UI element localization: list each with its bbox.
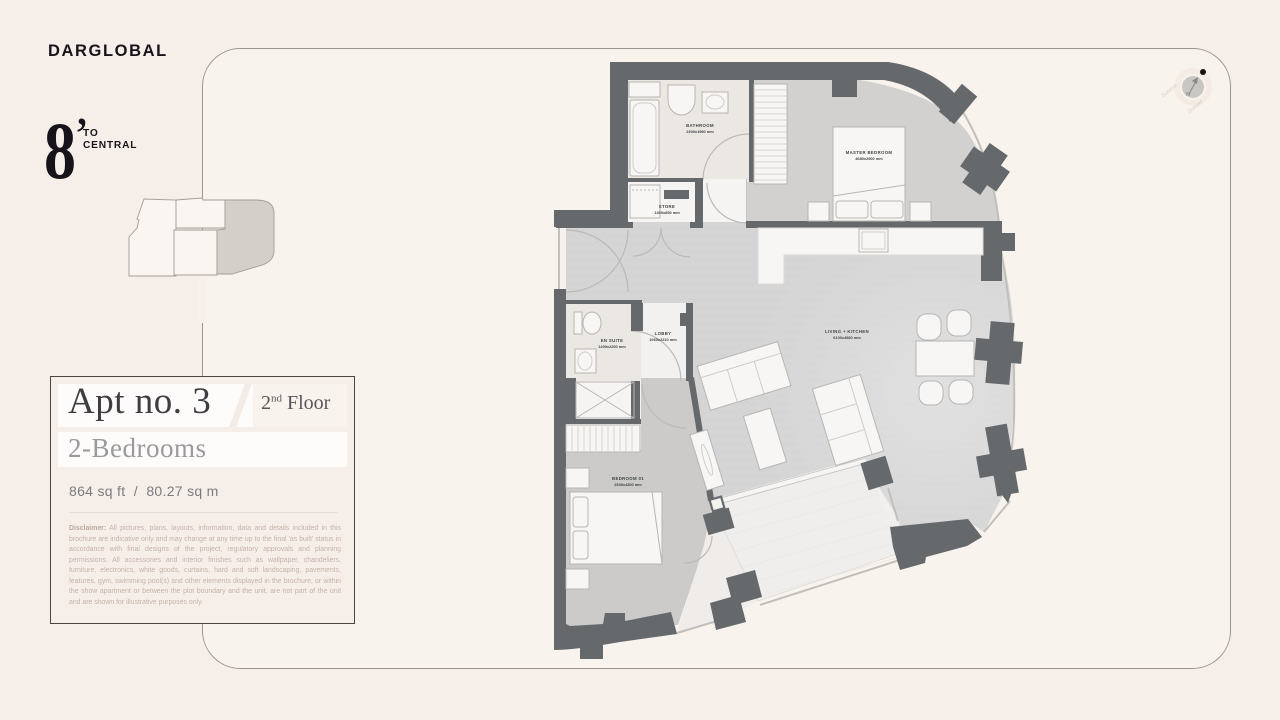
svg-text:BATHROOM: BATHROOM bbox=[686, 123, 714, 128]
svg-text:6100x4860 mm: 6100x4860 mm bbox=[833, 335, 861, 340]
svg-text:BEDROOM 01: BEDROOM 01 bbox=[612, 476, 644, 481]
svg-text:1060x2210 mm: 1060x2210 mm bbox=[649, 337, 677, 342]
svg-text:1400x2200 mm: 1400x2200 mm bbox=[598, 344, 626, 349]
svg-text:1400x850 mm: 1400x850 mm bbox=[654, 210, 680, 215]
svg-text:LOBBY: LOBBY bbox=[655, 331, 672, 336]
svg-text:4680x2900 mm: 4680x2900 mm bbox=[855, 156, 883, 161]
svg-text:STORE: STORE bbox=[659, 204, 675, 209]
svg-text:N: N bbox=[1186, 92, 1190, 98]
svg-text:2530x4300 mm: 2530x4300 mm bbox=[614, 482, 642, 487]
svg-text:MASTER BEDROOM: MASTER BEDROOM bbox=[846, 150, 893, 155]
svg-text:2300x1990 mm: 2300x1990 mm bbox=[686, 129, 714, 134]
svg-text:EN SUITE: EN SUITE bbox=[601, 338, 624, 343]
svg-text:LIVING + KITCHEN: LIVING + KITCHEN bbox=[825, 329, 869, 334]
